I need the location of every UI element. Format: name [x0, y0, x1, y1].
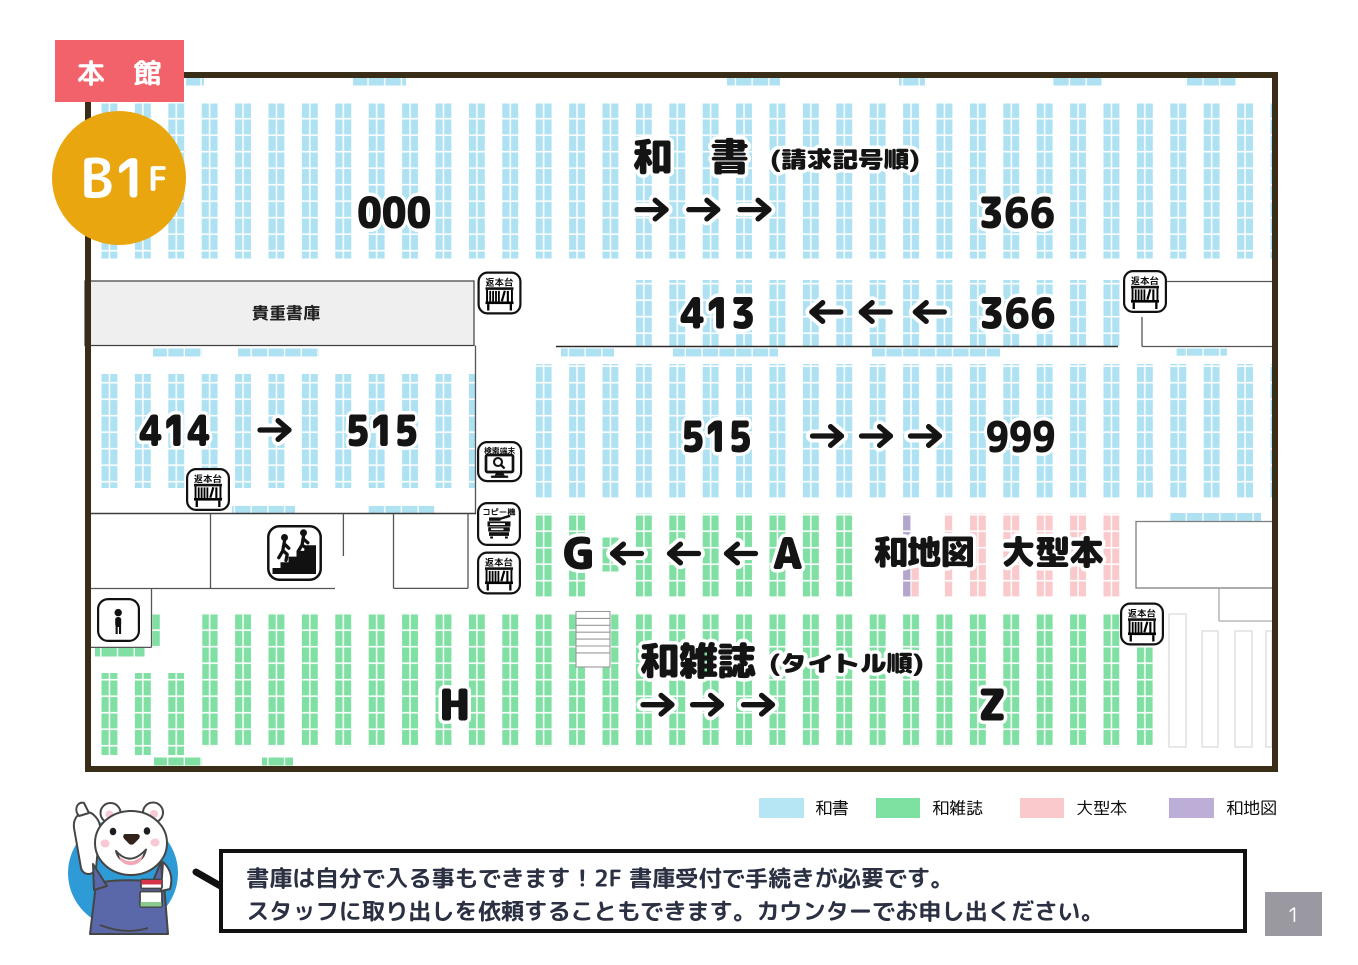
svg-text:1: 1: [1287, 901, 1299, 929]
svg-text:(タイトル順): (タイトル順): [769, 648, 924, 680]
svg-text:515: 515: [681, 406, 752, 466]
svg-text:(請求記号順): (請求記号順): [770, 143, 920, 175]
svg-text:スタッフに取り出しを依頼することもできます。カウンターでお申: スタッフに取り出しを依頼することもできます。カウンターでお申し出ください。: [246, 896, 1104, 928]
svg-text:和雑誌: 和雑誌: [932, 797, 983, 820]
svg-text:366: 366: [979, 182, 1056, 242]
svg-text:和雑誌: 和雑誌: [639, 634, 756, 688]
svg-text:貴重書庫: 貴重書庫: [252, 302, 320, 325]
svg-text:414: 414: [139, 400, 211, 460]
svg-text:515: 515: [346, 400, 419, 460]
svg-text:000: 000: [357, 182, 431, 242]
svg-text:A: A: [773, 523, 803, 584]
svg-text:本 館: 本 館: [77, 53, 161, 92]
svg-text:和書: 和書: [815, 797, 849, 820]
svg-text:和地図: 和地図: [1226, 797, 1277, 820]
svg-text:大型本: 大型本: [1002, 527, 1104, 575]
svg-text:和地図: 和地図: [873, 527, 975, 575]
svg-text:書庫は自分で入る事もできます！2F 書庫受付で手続きが必要で: 書庫は自分で入る事もできます！2F 書庫受付で手続きが必要です。: [246, 863, 953, 895]
svg-text:G: G: [563, 523, 595, 584]
svg-text:大型本: 大型本: [1076, 797, 1127, 820]
svg-text:366: 366: [979, 283, 1056, 343]
svg-text:和 書: 和 書: [632, 130, 749, 184]
svg-text:999: 999: [986, 406, 1056, 466]
svg-text:H: H: [439, 675, 471, 736]
svg-text:413: 413: [680, 283, 756, 343]
svg-text:Z: Z: [978, 675, 1006, 736]
